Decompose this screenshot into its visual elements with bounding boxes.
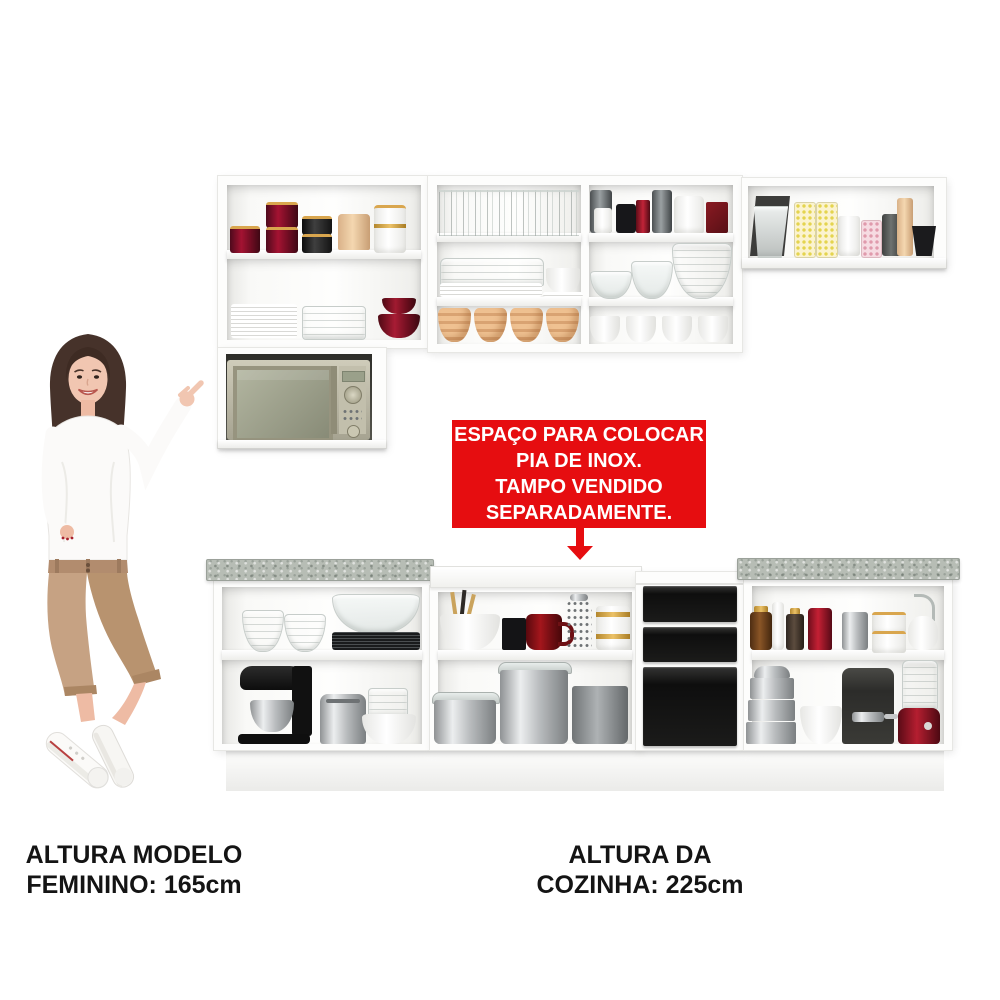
female-model (22, 332, 217, 794)
microwave-dial (344, 386, 362, 404)
slim-white-bottle (772, 602, 784, 650)
white-teapot (908, 616, 938, 650)
white-canister (674, 196, 704, 233)
steamer-tier (750, 678, 794, 699)
black-door (643, 667, 737, 746)
black-candle (302, 216, 332, 235)
model-back-leg (87, 573, 158, 684)
white-cup (662, 316, 692, 342)
model-pointing-arm (121, 405, 183, 466)
countertop-right (737, 558, 960, 580)
coffee-portafilter (852, 712, 884, 722)
tall-steel-pot (500, 670, 568, 744)
model-eye (94, 375, 99, 378)
red-candle (230, 226, 260, 253)
model-front-leg (47, 573, 95, 696)
dark-red-box (706, 202, 728, 233)
black-vase (616, 204, 636, 233)
red-candle (266, 202, 298, 228)
sink-top-no-countertop (430, 566, 642, 588)
peach-pillar-candle (897, 198, 913, 256)
glass-plate-stack (302, 306, 366, 340)
white-canister-gold-rim (872, 631, 906, 653)
callout-box: ESPAÇO PARA COLOCAR PIA DE INOX. TAMPO V… (452, 420, 706, 528)
gray-pot (572, 686, 628, 744)
black-drawer (643, 586, 737, 622)
red-mug (526, 614, 562, 650)
dark-plate-stack (332, 632, 420, 650)
microwave-start-button (347, 425, 360, 438)
callout-line: TAMPO VENDIDO (452, 474, 706, 500)
plinth (226, 750, 944, 791)
blender-button (924, 722, 932, 730)
yellow-candy-jar (794, 202, 816, 258)
microwave-shelf-board (218, 440, 386, 449)
gold-band (596, 612, 630, 617)
steamer-lid (754, 666, 790, 678)
silver-canister (842, 612, 868, 650)
red-vase (636, 200, 650, 233)
amber-bottle (750, 612, 772, 650)
black-drawer (643, 627, 737, 662)
model-nose (87, 379, 88, 386)
microwave-door (233, 366, 333, 442)
pink-candy-jar (861, 220, 882, 258)
dark-bottle (786, 614, 804, 650)
steel-pot (434, 700, 496, 744)
black-canister (502, 618, 526, 650)
caption-model-height: ALTURA MODELO FEMININO: 165cm (8, 840, 260, 900)
white-cup (590, 316, 620, 342)
red-candle (266, 227, 298, 253)
product-image: ESPAÇO PARA COLOCAR PIA DE INOX. TAMPO V… (0, 0, 1000, 1000)
white-plate-stack (440, 283, 542, 297)
callout-line: ESPAÇO PARA COLOCAR (452, 422, 706, 448)
white-cup (626, 316, 656, 342)
grater (566, 600, 592, 650)
yellow-candy-jar (816, 202, 838, 258)
steamer-tier (746, 722, 796, 744)
model-eye (77, 375, 82, 378)
callout-line: PIA DE INOX. (452, 448, 706, 474)
white-jar (838, 216, 860, 256)
stand-mixer-column (292, 666, 312, 736)
drawer-unit-top-line (636, 583, 744, 585)
caption-line: ALTURA DA (512, 840, 768, 870)
blender-base (898, 708, 940, 744)
white-cup (698, 316, 728, 342)
caption-line: FEMININO: 165cm (8, 870, 260, 900)
saucer (543, 292, 583, 297)
wall-cabinet-right-board (742, 258, 946, 269)
champagne-glasses-row (439, 190, 579, 236)
steamer-tier (748, 700, 795, 721)
caption-kitchen-height: ALTURA DA COZINHA: 225cm (512, 840, 768, 900)
stand-mixer-base (238, 734, 310, 744)
model-back-ankle (112, 682, 146, 725)
white-jar-gold-trim (374, 205, 406, 253)
caption-line: ALTURA MODELO (8, 840, 260, 870)
small-white-vase (594, 208, 612, 233)
glass-dish-stack (440, 258, 544, 286)
callout-line: SEPARADAMENTE. (452, 500, 706, 526)
portafilter-handle (884, 714, 898, 719)
toaster-slots (326, 699, 360, 703)
gold-band (374, 224, 406, 228)
microwave-display (342, 371, 365, 382)
microwave-hinge (331, 366, 337, 434)
microwave-buttons (342, 408, 362, 422)
red-canister (808, 608, 832, 650)
callout-arrow-stem (576, 528, 584, 548)
peach-pillar-candle (338, 214, 370, 250)
white-plate-stack (231, 304, 297, 338)
white-cup (546, 268, 580, 292)
countertop-left (206, 559, 434, 581)
gold-band (596, 634, 630, 639)
model-pointing-finger (188, 383, 201, 396)
caption-line: COZINHA: 225cm (512, 870, 768, 900)
model-neck (81, 400, 95, 418)
coffee-machine (842, 668, 894, 744)
gray-vase (652, 190, 672, 233)
black-candle (302, 234, 332, 253)
blender-jar (902, 660, 938, 710)
grater-handle (570, 594, 588, 601)
callout-arrow-head (567, 546, 593, 560)
model-front-ankle (76, 693, 95, 722)
